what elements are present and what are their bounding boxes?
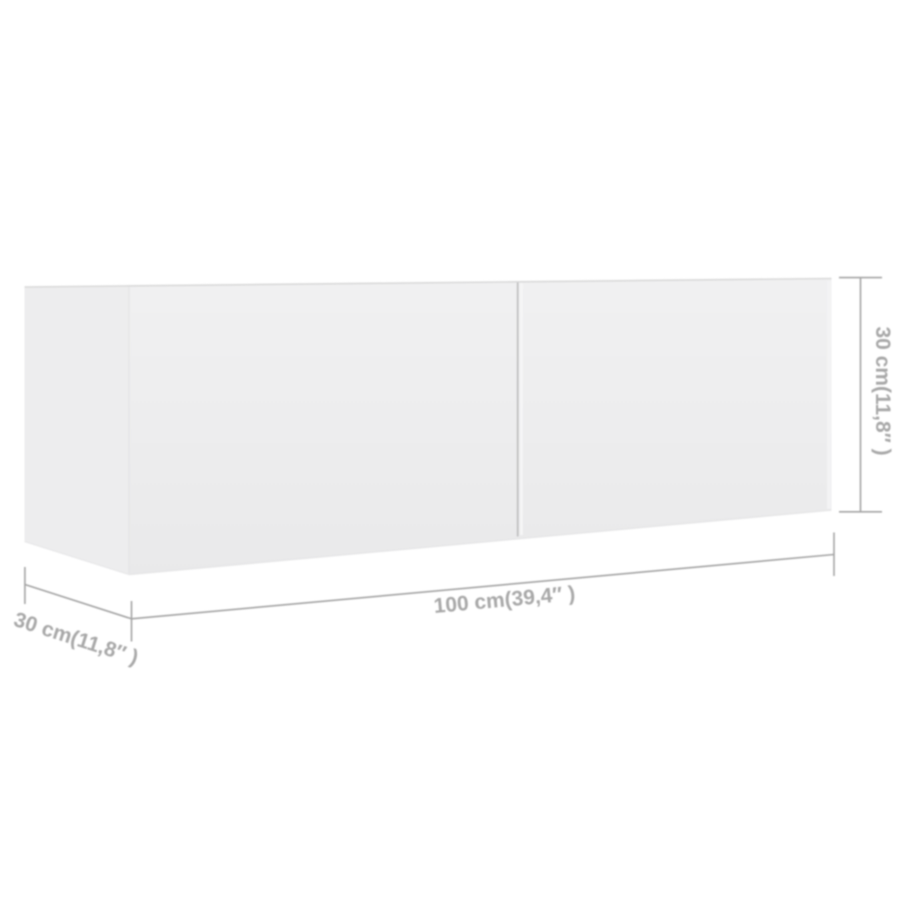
svg-text:30 cm(11,8″ ): 30 cm(11,8″ ) (871, 326, 894, 455)
svg-text:100 cm(39,4″ ): 100 cm(39,4″ ) (433, 582, 577, 618)
svg-text:30 cm(11,8″ ): 30 cm(11,8″ ) (11, 608, 141, 669)
